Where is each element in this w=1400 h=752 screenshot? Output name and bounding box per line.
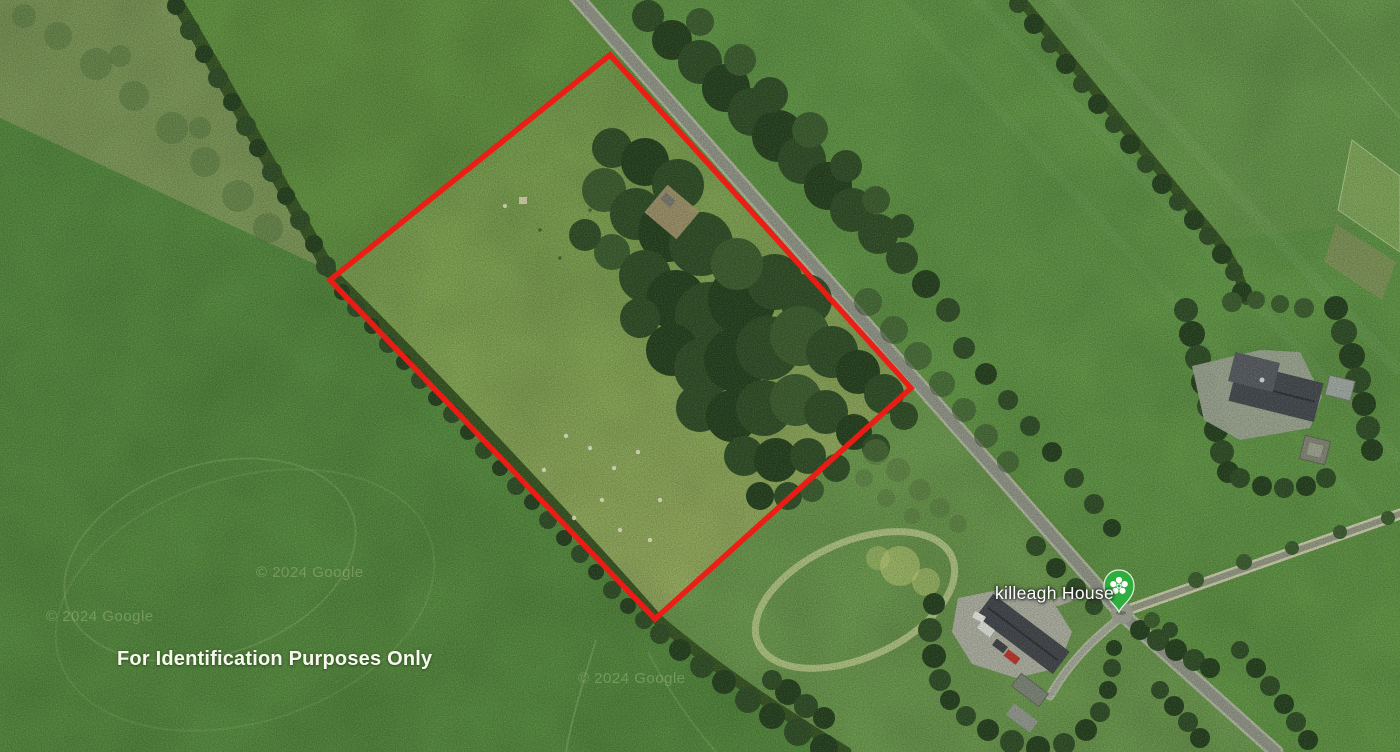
grain-light xyxy=(0,0,1400,752)
aerial-imagery xyxy=(0,0,1400,752)
satellite-map: © 2024 Google © 2024 Google © 2024 Googl… xyxy=(0,0,1400,752)
